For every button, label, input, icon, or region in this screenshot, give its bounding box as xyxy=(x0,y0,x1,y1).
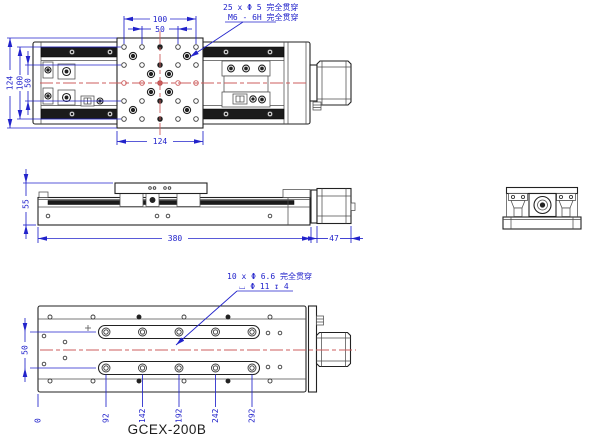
dim-height: 55 xyxy=(22,199,31,209)
bottom-note-line1: 10 x Φ 6.6 完全贯穿 xyxy=(227,271,312,281)
end-base xyxy=(503,217,581,229)
rail-stripe-front xyxy=(48,201,294,205)
ordinate-1: 92 xyxy=(102,413,111,423)
dim-top-inner: 50 xyxy=(155,25,165,34)
drawing-page: 124 100 50 100 xyxy=(0,0,600,440)
motor-front xyxy=(311,189,355,224)
dim-length: 380 xyxy=(168,234,183,243)
end-rail-bearing-left xyxy=(509,194,528,217)
dim-motor-length: 47 xyxy=(329,234,339,243)
drawing-canvas: 124 100 50 100 xyxy=(0,0,600,440)
end-rail-bearing-right xyxy=(557,194,576,217)
motor-boss-front xyxy=(351,203,355,211)
motor-connector-top xyxy=(313,102,321,110)
top-note-line1: 25 x Φ 5 完全贯穿 xyxy=(223,2,298,12)
end-plate-bottom xyxy=(309,306,317,392)
motor-top xyxy=(310,61,351,110)
ordinate-0: 0 xyxy=(34,418,43,423)
motor-bottom xyxy=(309,306,351,392)
limit-switch-right xyxy=(233,94,256,104)
dim-slot-spacing: 50 xyxy=(21,345,30,355)
bottom-note-line2: ⌴ Φ 11 ↧ 4 xyxy=(239,282,289,291)
front-view: 55 380 47 xyxy=(22,169,364,243)
ordinate-4: 242 xyxy=(211,408,220,423)
ordinate-3: 192 xyxy=(175,408,184,423)
dim-top-outer: 100 xyxy=(153,15,168,24)
motor-connector-bottom xyxy=(317,316,324,325)
left-end-cap-front xyxy=(39,192,48,198)
dim-left-inner: 50 xyxy=(24,78,33,88)
bottom-view: 50 0 92 142 192 242 292 10 x Φ 6.6 完全贯穿 … xyxy=(21,271,357,423)
stage-body-front xyxy=(38,190,310,226)
end-view xyxy=(503,188,581,230)
dim-plate-width: 124 xyxy=(153,137,168,146)
right-end-block-front xyxy=(283,190,310,198)
top-view: 124 100 50 100 xyxy=(6,2,352,146)
stage-body-bottom xyxy=(38,306,306,392)
top-note-line2: M6 - 6H 完全贯穿 xyxy=(228,12,299,22)
dim-left-outer: 124 xyxy=(6,76,15,91)
ordinate-5: 292 xyxy=(248,408,257,423)
end-top-plate xyxy=(507,188,578,194)
end-nut-block xyxy=(529,194,556,217)
drawing-title: GCEX-200B xyxy=(128,422,207,437)
ordinate-2: 142 xyxy=(138,408,147,423)
